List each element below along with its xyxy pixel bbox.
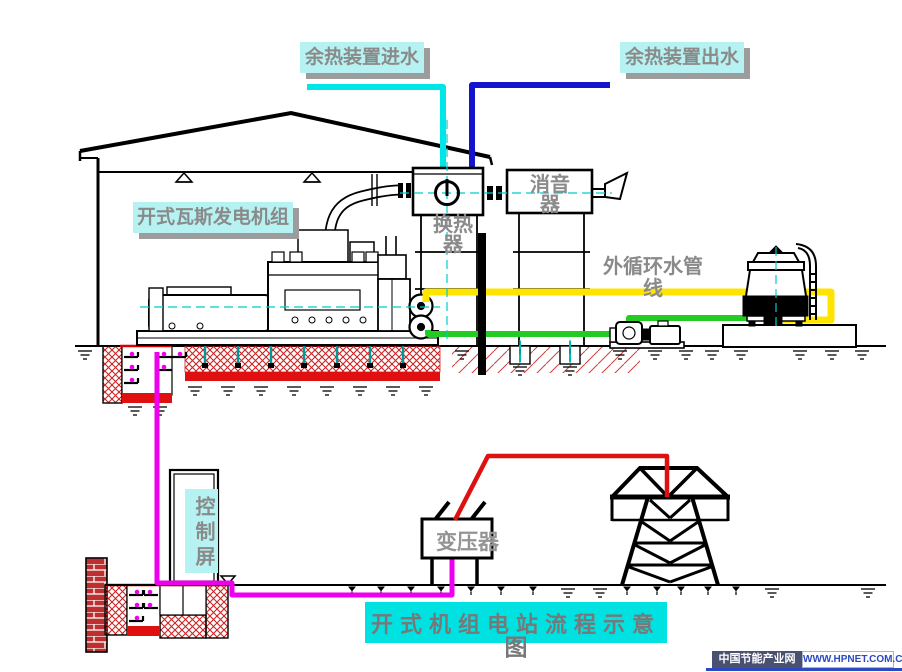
- label-control-panel: 控制屏: [185, 489, 218, 573]
- label-heat-exchanger: 换热 器: [425, 215, 481, 255]
- label-genset: 开式瓦斯发电机组: [133, 202, 293, 233]
- circulation-return-pipe-a: [428, 330, 616, 334]
- label-ext-pipe-line2: 线: [597, 278, 709, 300]
- tower-sump: [764, 314, 782, 325]
- label-waste-heat-inlet: 余热装置进水: [300, 42, 424, 73]
- watermark-site-name: 中国节能产业网: [712, 651, 802, 668]
- label-muffler-line1: 消音: [522, 175, 578, 195]
- brick-wall: [86, 558, 107, 652]
- cable-pit-upper: [103, 346, 186, 415]
- label-heat-exchanger-line1: 换热: [425, 215, 481, 235]
- diagram-linework: [0, 0, 902, 672]
- label-transformer: 变压器: [436, 526, 499, 556]
- process-flow-diagram: 余热装置进水 余热装置出水 开式瓦斯发电机组 换热 器 消音 器 外循环水管 线…: [0, 0, 902, 672]
- gas-genset: [137, 230, 438, 345]
- label-muffler: 消音 器: [522, 175, 578, 215]
- label-external-circulation-pipe: 外循环水管 线: [597, 256, 709, 300]
- tower-pedestal: [723, 325, 856, 347]
- power-cable: [455, 456, 667, 520]
- waste-heat-outlet-pipe: [472, 85, 610, 172]
- transmission-tower: [610, 468, 730, 585]
- cooling-tower: [723, 244, 856, 347]
- label-ext-pipe-line1: 外循环水管: [597, 256, 709, 278]
- heat-exchanger: [398, 168, 483, 215]
- diagram-title-line2: 图: [365, 628, 667, 662]
- label-muffler-line2: 器: [522, 195, 578, 215]
- waste-heat-inlet-pipe: [307, 87, 443, 172]
- exhaust-outlet-icon: [592, 173, 627, 199]
- genset-foundation: [185, 340, 440, 395]
- label-waste-heat-outlet: 余热装置出水: [620, 42, 744, 73]
- watermark-underline: [706, 668, 902, 671]
- label-heat-exchanger-line2: 器: [425, 235, 481, 255]
- circulation-pump: [610, 321, 684, 348]
- watermark-site-url: WWW.HPNET.COM.CN: [802, 651, 894, 668]
- ceiling-hanger-icon: [176, 173, 320, 182]
- cable-pit-lower: [105, 585, 228, 638]
